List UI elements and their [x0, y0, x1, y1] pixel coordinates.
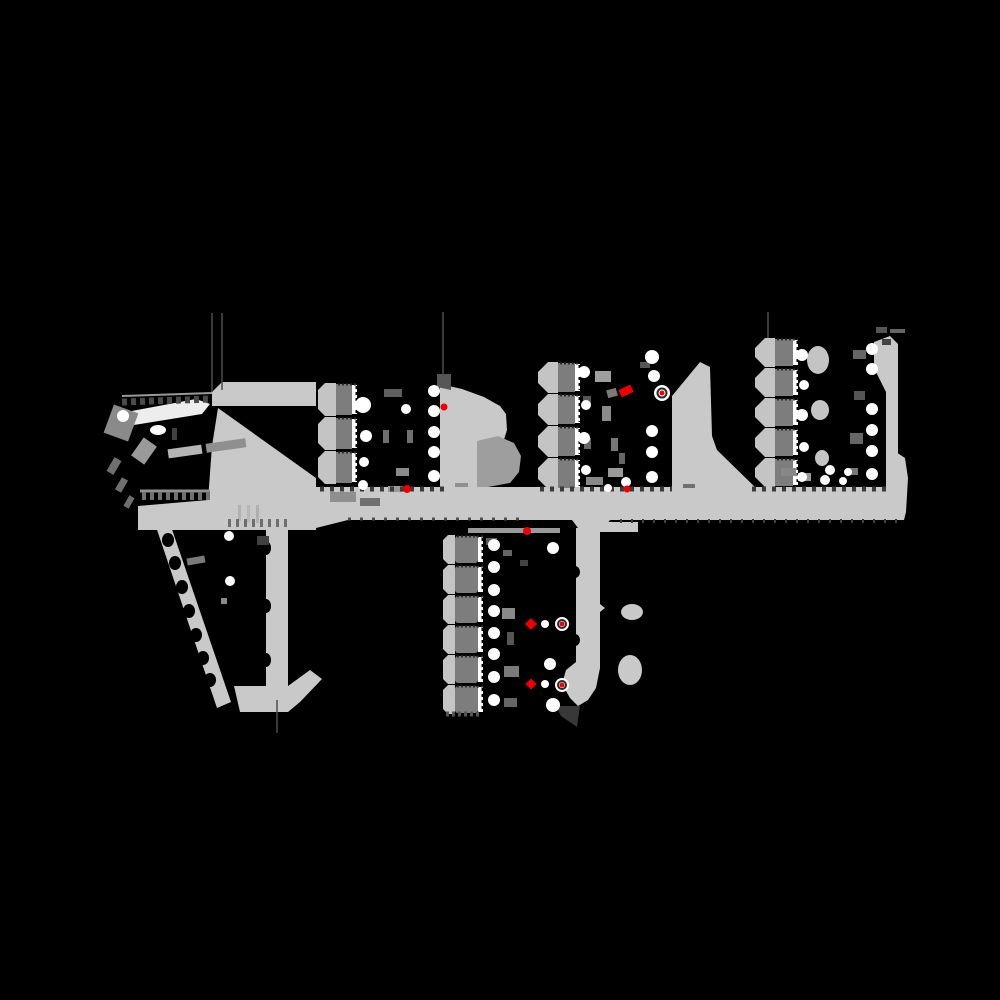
white-blob: [541, 680, 549, 688]
occupancy-grid-map[interactable]: [0, 0, 1000, 1000]
aisle-block-4-shelf-unit-light: [443, 685, 455, 714]
white-blob: [646, 471, 658, 483]
poi-marker: [441, 404, 448, 411]
white-blob: [544, 658, 556, 670]
map-blob: [197, 651, 209, 665]
map-mark: [854, 391, 865, 400]
map-mark: [221, 598, 227, 604]
map-blob: [150, 425, 166, 435]
map-mark: [619, 453, 625, 464]
aisle-block-4-shelf-unit-body: [455, 686, 478, 713]
map-mark: [602, 406, 611, 421]
white-blob: [866, 403, 878, 415]
map-mark: [247, 505, 250, 523]
aisle-block-1-shelf-unit-light: [318, 451, 336, 484]
map-blob: [162, 533, 174, 547]
white-blob: [646, 425, 658, 437]
map-mark: [396, 468, 409, 476]
map-blob: [570, 566, 580, 578]
white-blob: [547, 542, 559, 554]
white-blob: [117, 410, 129, 422]
white-blob: [604, 484, 612, 492]
map-blob: [176, 580, 188, 594]
map-blob: [261, 653, 271, 667]
map-mark: [503, 550, 512, 556]
poi-marker: [403, 485, 411, 493]
map-mark: [611, 438, 618, 451]
white-blob: [428, 426, 440, 438]
white-blob: [488, 605, 500, 617]
map-blob: [815, 450, 829, 466]
aisle-block-4-shelf-unit-light: [443, 595, 455, 624]
white-blob: [796, 409, 808, 421]
aisle-block-4-shelf-unit-body: [455, 626, 478, 653]
map-mark: [407, 430, 413, 443]
white-blob: [225, 576, 235, 586]
aisle-block-1-shelf-unit-body: [336, 452, 352, 483]
white-blob: [488, 694, 500, 706]
aisle-block-4-shelf-unit-light: [443, 655, 455, 684]
aisle-block-1-shelf-unit-body: [336, 418, 352, 449]
white-blob: [359, 457, 369, 467]
map-mark: [507, 632, 514, 645]
map-mark: [882, 339, 891, 345]
white-blob: [799, 442, 809, 452]
white-blob: [646, 446, 658, 458]
white-blob: [799, 380, 809, 390]
white-blob: [546, 698, 560, 712]
white-blob: [488, 561, 500, 573]
map-mark: [360, 498, 380, 506]
map-blob: [261, 599, 271, 613]
aisle-block-3-shelf-unit-body: [775, 339, 793, 366]
map-mark: [383, 430, 389, 443]
aisle-block-2-shelf-unit-body: [558, 395, 575, 424]
white-blob: [360, 430, 372, 442]
map-mark: [504, 698, 517, 707]
white-blob: [866, 424, 878, 436]
white-blob: [797, 472, 807, 482]
poi-marker: [560, 683, 565, 688]
white-blob: [488, 539, 500, 551]
map-mark: [850, 433, 863, 444]
map-blob: [621, 604, 643, 620]
white-blob: [428, 446, 440, 458]
map-mark: [238, 505, 241, 521]
white-blob: [648, 370, 660, 382]
map-blob: [618, 655, 642, 685]
aisle-block-2-shelf-unit-body: [558, 459, 575, 488]
aisle-block-1-shelf-unit-body: [336, 384, 352, 415]
aisle-block-4-shelf-unit-light: [443, 565, 455, 594]
poi-marker: [624, 486, 631, 493]
aisle-block-4-shelf-unit-light: [443, 535, 455, 564]
white-blob: [825, 465, 835, 475]
poi-marker: [660, 391, 665, 396]
map-mark: [781, 468, 796, 476]
white-blob: [355, 397, 371, 413]
map-mark: [502, 608, 515, 619]
right-corridor-stub: [886, 392, 898, 490]
aisle-block-4-shelf-unit-body: [455, 536, 478, 563]
white-blob: [820, 475, 830, 485]
block4-corridor-top-stub: [600, 522, 638, 532]
map-mark: [455, 483, 468, 487]
map-blob: [807, 346, 829, 374]
map-mark: [608, 468, 623, 477]
aisle-block-1-shelf-unit-light: [318, 383, 336, 416]
white-blob: [428, 405, 440, 417]
map-mark: [586, 477, 603, 485]
white-blob: [488, 648, 500, 660]
map-blob: [183, 604, 195, 618]
map-mark: [257, 536, 269, 545]
aisle-block-3-shelf-unit-body: [775, 429, 793, 456]
white-blob: [488, 584, 500, 596]
poi-marker: [560, 622, 565, 627]
aisle-block-4-shelf-unit-body: [455, 656, 478, 683]
map-mark: [890, 329, 905, 333]
white-blob: [839, 477, 847, 485]
white-blob: [488, 671, 500, 683]
map-mark: [853, 350, 866, 359]
white-blob: [866, 363, 878, 375]
map-mark: [595, 371, 611, 382]
white-blob: [541, 620, 549, 628]
map-blob: [169, 556, 181, 570]
map-mark: [330, 492, 356, 502]
aisle-block-3-shelf-unit-body: [775, 399, 793, 426]
map-mark: [256, 505, 259, 523]
white-blob: [866, 445, 878, 457]
white-blob: [866, 468, 878, 480]
white-blob: [581, 465, 591, 475]
map-blob: [570, 634, 580, 646]
white-blob: [581, 400, 591, 410]
white-blob: [224, 531, 234, 541]
white-blob: [796, 349, 808, 361]
white-blob: [428, 470, 440, 482]
aisle-block-4-shelf-unit-body: [455, 566, 478, 593]
white-blob: [578, 432, 590, 444]
map-mark: [384, 389, 402, 397]
white-blob: [844, 468, 852, 476]
aisle-block-4-shelf-unit-light: [443, 625, 455, 654]
top-band-free-space: [212, 382, 316, 406]
map-blob: [190, 628, 202, 642]
white-blob: [488, 627, 500, 639]
white-blob: [866, 343, 878, 355]
aisle-block-2-shelf-unit-body: [558, 363, 575, 392]
map-blob: [204, 673, 216, 687]
map-mark: [504, 666, 519, 677]
white-blob: [428, 385, 440, 397]
poi-marker: [523, 527, 531, 535]
aisle-block-4-shelf-unit-body: [455, 596, 478, 623]
map-mark: [683, 484, 695, 488]
aisle-block-3-shelf-unit-body: [775, 369, 793, 396]
map-mark: [520, 560, 528, 566]
white-blob: [621, 477, 631, 487]
map-mark: [876, 327, 887, 333]
white-blob: [578, 366, 590, 378]
aisle-block-1-shelf-unit-light: [318, 417, 336, 450]
map-blob: [811, 400, 829, 420]
map-viewport: [0, 0, 1000, 1000]
white-blob: [358, 480, 368, 490]
white-blob: [645, 350, 659, 364]
aisle-block-2-shelf-unit-body: [558, 427, 575, 456]
map-mark: [468, 528, 560, 533]
map-mark: [172, 428, 177, 440]
white-blob: [401, 404, 411, 414]
